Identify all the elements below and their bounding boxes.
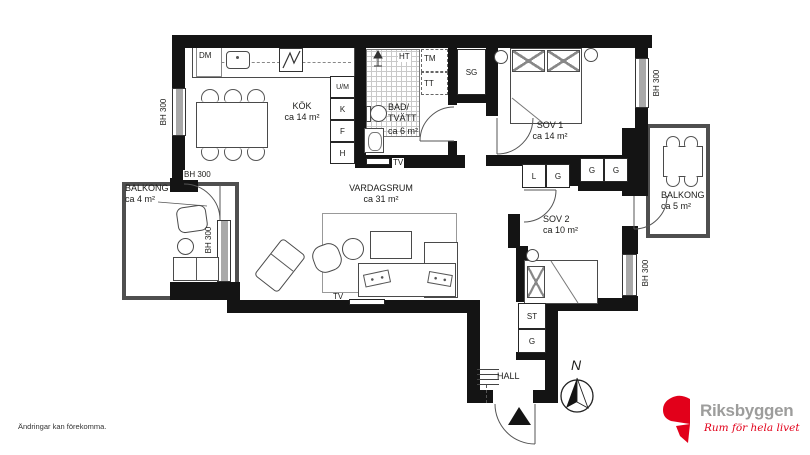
cabinet-oven-microwave: U/M (330, 76, 355, 98)
tv-outlet-label: TV (392, 158, 404, 168)
wardrobe: G (546, 164, 570, 188)
room-area: ca 10 m² (543, 225, 578, 236)
room-name: BAD/ (388, 102, 418, 113)
dining-chair (224, 148, 242, 161)
room-label-hall: HALL (497, 371, 520, 382)
washing-machine-label: TM (424, 54, 436, 64)
room-label-bedroom2: SOV 2 ca 10 m² (543, 214, 578, 236)
hat-rack-post (486, 385, 487, 403)
window-height-note: BH 300 (652, 70, 662, 97)
balcony-chair (666, 136, 680, 147)
room-label-balcony-right: BALKONG ca 5 m² (661, 190, 705, 212)
tumble-dryer-label: TT (424, 79, 434, 89)
room-area: ca 14 m² (262, 112, 342, 123)
room-label-kitchen: KÖK ca 14 m² (262, 101, 342, 123)
kitchen-sink (226, 51, 250, 69)
room-area: ca 4 m² (125, 194, 169, 205)
cabinet-label: U/M (336, 84, 349, 91)
room-area: ca 6 m² (388, 126, 418, 137)
nightstand (494, 50, 508, 64)
cabinet-freezer: F (330, 120, 355, 142)
pillow (527, 266, 545, 298)
tv-outlet-label: TV (333, 292, 343, 302)
wardrobe-label: G (555, 172, 561, 181)
room-name: TVÄTT (388, 113, 418, 124)
door-entrance (495, 404, 535, 444)
disclaimer-text: Ändringar kan förekomma. (18, 422, 106, 431)
wardrobe-label: G (589, 166, 595, 175)
room-label-bathroom: BAD/ TVÄTT ca 6 m² (388, 102, 418, 136)
living-balcony-window (217, 220, 231, 282)
closet-label: SG (466, 68, 478, 77)
wall (508, 214, 520, 248)
brand-name: Riksbyggen (700, 401, 793, 421)
pillow (512, 50, 545, 72)
logo-flag-top (663, 396, 690, 424)
dining-chair (201, 148, 219, 161)
riksbyggen-logo-mark (663, 396, 690, 443)
entrance-marker (508, 407, 531, 425)
stove (279, 48, 303, 72)
bedroom2-window (622, 254, 637, 296)
wardrobe-label: G (529, 337, 535, 346)
room-name: VARDAGSRUM (330, 183, 432, 194)
room-label-bedroom1: SOV 1 ca 14 m² (508, 120, 592, 142)
room-name: BALKONG (661, 190, 705, 201)
storage-closet: ST (518, 303, 546, 329)
wall (448, 141, 457, 157)
kitchen-window (172, 88, 186, 136)
wardrobe: G (604, 158, 628, 182)
room-name: SOV 1 (508, 120, 592, 131)
wall (172, 35, 652, 48)
wall (516, 352, 546, 360)
wall (545, 300, 558, 403)
balcony-side-table (177, 238, 194, 255)
nightstand (526, 249, 539, 262)
room-label-balcony-left: BALKONG ca 4 m² (125, 183, 169, 205)
window-height-note: BH 300 (159, 99, 169, 126)
towel-dryer-label: HT (398, 52, 411, 62)
closet-label: ST (527, 312, 537, 321)
wall (172, 48, 185, 88)
wardrobe: G (580, 158, 604, 182)
lounge-chair (254, 238, 307, 294)
room-name: SOV 2 (543, 214, 578, 225)
bench-divider (196, 258, 197, 280)
window-height-note: BH 300 (183, 170, 212, 180)
wall (635, 108, 648, 140)
wall (452, 95, 486, 103)
hat-rack (477, 366, 499, 385)
closet-label: L (532, 172, 536, 181)
wall (635, 48, 648, 58)
tv-outlet-marker (366, 158, 390, 165)
room-area: ca 31 m² (330, 194, 432, 205)
wall (467, 390, 493, 403)
cleaning-closet: SG (457, 49, 486, 95)
cabinet-label: F (340, 127, 345, 136)
balcony-table (663, 146, 703, 177)
wardrobe-label: G (613, 166, 619, 175)
dining-table (196, 102, 268, 148)
wardrobe: G (518, 329, 546, 353)
toilet-bowl (370, 105, 387, 122)
cabinet-tall: H (330, 142, 355, 164)
dining-chair (201, 89, 219, 102)
window-height-note: BH 300 (641, 260, 651, 287)
pillow (547, 50, 580, 72)
room-label-living: VARDAGSRUM ca 31 m² (330, 183, 432, 205)
door-bathroom (420, 107, 454, 141)
pouf (342, 238, 364, 260)
nightstand (584, 48, 598, 62)
cabinet-label: H (340, 149, 346, 158)
tv-outlet-marker (349, 299, 385, 305)
coffee-table (370, 231, 412, 259)
wall (622, 226, 638, 254)
linen-closet: L (522, 164, 546, 188)
washbasin-bowl (368, 132, 382, 151)
floor-plan: U/M K F H SG G G L G ST G TV TV (0, 0, 810, 455)
logo-flag-tail (676, 424, 690, 443)
room-name: BALKONG (125, 183, 169, 194)
dining-chair (247, 148, 265, 161)
brand-tagline: Rum för hela livet (704, 422, 800, 435)
room-area: ca 14 m² (508, 131, 592, 142)
window-height-note: BH 300 (204, 227, 214, 254)
balcony-chair (684, 136, 698, 147)
wall (170, 178, 198, 192)
compass-rose (561, 378, 593, 412)
bedroom1-window (635, 58, 649, 108)
compass-north-label: N (571, 357, 581, 374)
dining-chair (224, 89, 242, 102)
wall (622, 296, 638, 311)
room-name: KÖK (262, 101, 342, 112)
dishwasher-label: DM (199, 51, 211, 61)
room-area: ca 5 m² (661, 201, 705, 212)
sink-faucet-dot (236, 56, 239, 59)
